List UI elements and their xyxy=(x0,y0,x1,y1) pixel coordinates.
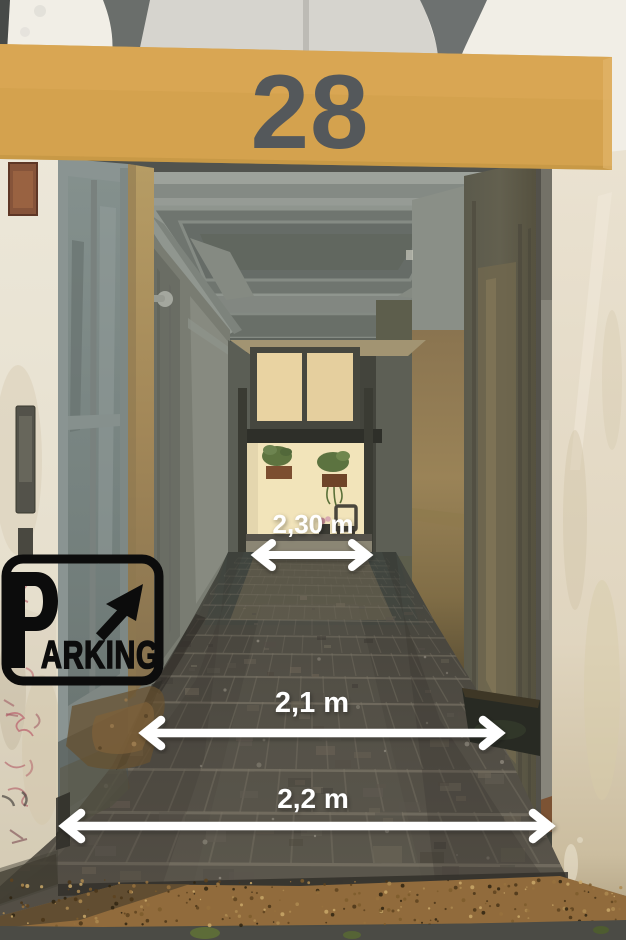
svg-text:2,1 m: 2,1 m xyxy=(275,687,349,719)
svg-text:28: 28 xyxy=(251,54,370,171)
svg-text:2,2 m: 2,2 m xyxy=(277,783,349,814)
svg-text:2,30 m: 2,30 m xyxy=(273,509,354,539)
svg-text:ARKING: ARKING xyxy=(41,634,159,677)
